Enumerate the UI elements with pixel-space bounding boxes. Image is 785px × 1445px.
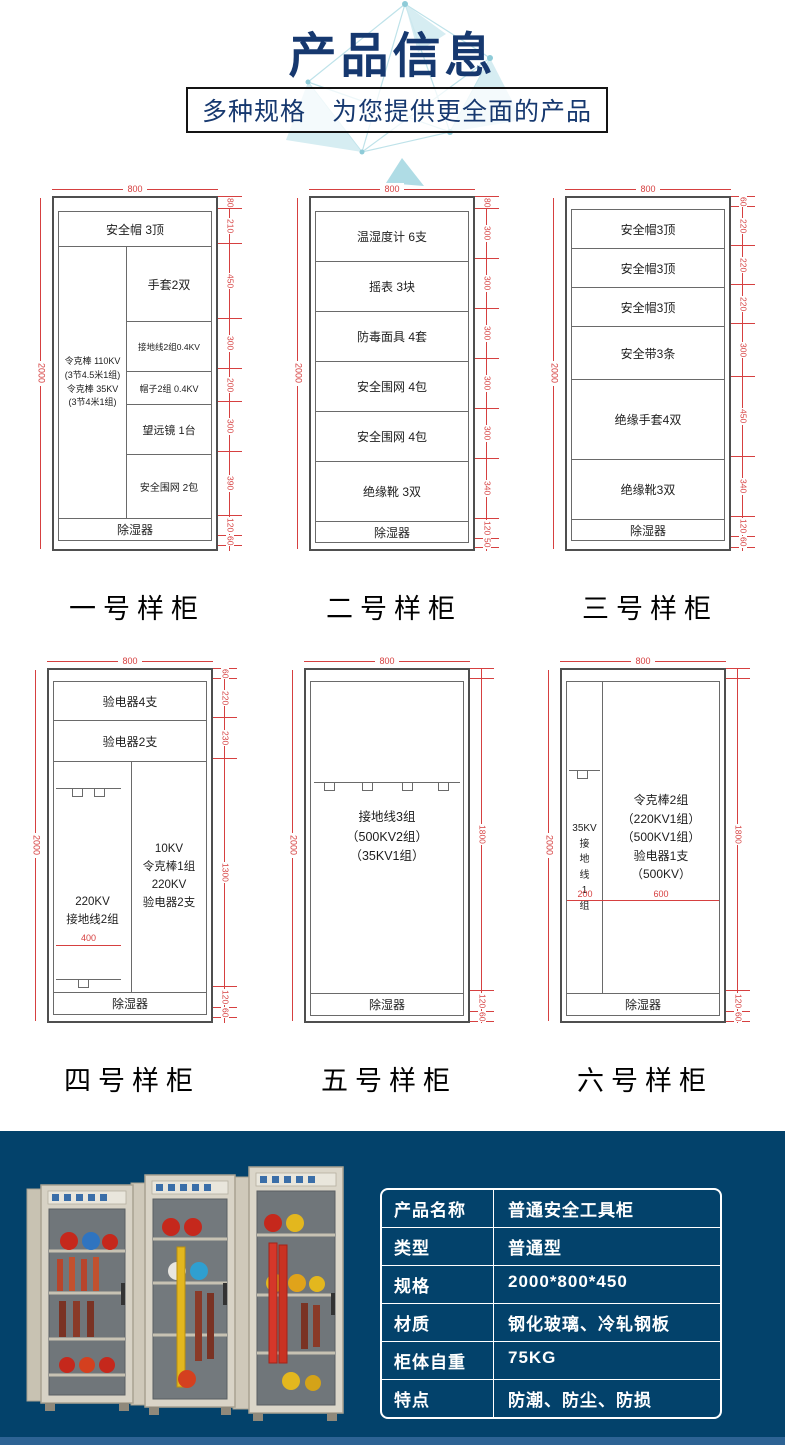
compartment-label: 10KV 令克棒1组 220KV 验电器2支 [132, 762, 206, 992]
dim-right: 60 220 220 220 300 450 340 120 60 [731, 196, 755, 551]
cabinet-diagram-3: 800 2000 安全帽3顶 安全帽3顶 安全帽3顶 安全带3条 绝缘手套4双 … [543, 183, 757, 626]
compartment: 接地线3组 （500KV2组） （35KV1组） [311, 682, 463, 994]
shelf-label: 摇表 3块 [316, 262, 468, 312]
subtitle-text: 多种规格 为您提供更全面的产品 [202, 92, 592, 128]
cabinet-diagram-4: 800 2000 验电器4支 验电器2支 220KV 接地线2组 400 [25, 655, 239, 1098]
compartment: 手套2双 接地线2组0.4KV 帽子2组 0.4KV 望远镜 1台 安全围网 2… [127, 247, 211, 518]
shelf-label: 除湿器 [316, 522, 468, 542]
dim-value: 2000 [37, 361, 46, 385]
compartment-label: 接地线3组 （500KV2组） （35KV1组） [311, 682, 463, 993]
dim-value: 60 [734, 1011, 743, 1022]
dim-value: 120 [483, 520, 492, 536]
dim-value: 1300 [221, 862, 230, 883]
dim-value: 120 [739, 518, 748, 534]
dim-top: 800 [565, 183, 731, 196]
dim-value: 300 [483, 275, 492, 291]
dim-value: 2000 [32, 833, 41, 857]
shelf-label: 温湿度计 6支 [316, 212, 468, 262]
dim-value: 200 [567, 888, 603, 901]
compartment-label: 35KV 接 地 线 1 组 [567, 682, 602, 993]
spec-row: 类型 普通型 [382, 1228, 720, 1266]
dim-value: 300 [226, 418, 235, 434]
dim-value: 450 [226, 273, 235, 289]
shelf-label: 安全帽3顶 [572, 288, 724, 327]
dim-value: 800 [380, 183, 403, 196]
dim-value: 800 [123, 183, 146, 196]
dim-left: 2000 [25, 668, 47, 1023]
spec-label: 特点 [382, 1380, 494, 1417]
dim-value: 450 [739, 408, 748, 424]
shelf-label: 除湿器 [567, 994, 719, 1015]
dim-right: 60 220 230 1300 120 60 [213, 668, 237, 1023]
cabinet-middle-illustration [145, 1175, 235, 1415]
shelf-label: 除湿器 [54, 993, 206, 1014]
dim-value: 2000 [550, 361, 559, 385]
shelf-label: 绝缘手套4双 [572, 380, 724, 460]
dim-value: 120 [478, 993, 487, 1009]
dim-value: 200 [226, 377, 235, 393]
compartment: 10KV 令克棒1组 220KV 验电器2支 [132, 762, 206, 992]
shelf-label: 接地线2组0.4KV [127, 322, 211, 372]
shelf-label: 除湿器 [59, 519, 211, 539]
compartment-label: 令克棒 110KV (3节4.5米1组) 令克棒 35KV (3节4米1组) [59, 247, 126, 518]
compartment: 35KV 接 地 线 1 组 [567, 682, 603, 993]
bottom-accent-strip [0, 1437, 785, 1445]
compartment-label: 220KV 接地线2组 [54, 762, 131, 992]
spec-label: 规格 [382, 1266, 494, 1303]
dim-top: 800 [560, 655, 726, 668]
dim-value: 2000 [294, 361, 303, 385]
dim-value: 220 [221, 690, 230, 706]
dim-value: 210 [226, 218, 235, 234]
cabinet-diagram-2: 800 2000 温湿度计 6支 摇表 3块 防毒面具 4套 安全围网 4包 安… [287, 183, 501, 626]
dim-value: 60 [221, 668, 230, 679]
dim-value: 2000 [545, 833, 554, 857]
dim-value: 60 [739, 196, 748, 207]
spec-value: 普通安全工具柜 [494, 1190, 720, 1227]
dim-value: 800 [631, 655, 654, 668]
spec-row: 材质 钢化玻璃、冷轧钢板 [382, 1304, 720, 1342]
spec-row: 产品名称 普通安全工具柜 [382, 1190, 720, 1228]
dim-right: 80 300 300 300 300 300 340 120 50 [475, 196, 499, 551]
dim-value: 300 [483, 425, 492, 441]
dim-value: 220 [739, 296, 748, 312]
dim-value: 390 [226, 475, 235, 491]
dim-value: 60 [226, 535, 235, 546]
shelf-label: 绝缘靴 3双 [316, 462, 468, 522]
dim-value: 340 [483, 480, 492, 496]
hanger-profile [56, 979, 121, 988]
spec-value: 普通型 [494, 1228, 720, 1265]
compartment-label: 令克棒2组 （220KV1组） （500KV1组） 验电器1支 （500KV） [603, 682, 719, 993]
cabinet-label: 五号样柜 [282, 1059, 496, 1098]
product-showcase-section: 产品名称 普通安全工具柜 类型 普通型 规格 2000*800*450 材质 钢… [0, 1131, 785, 1445]
dim-value: 220 [739, 218, 748, 234]
dim-value: 800 [118, 655, 141, 668]
dim-left: 2000 [538, 668, 560, 1023]
shelf-label: 安全帽 3顶 [59, 212, 211, 247]
dim-left: 2000 [30, 196, 52, 551]
cabinet-outline: 接地线3组 （500KV2组） （35KV1组） 除湿器 [304, 668, 470, 1023]
dim-value: 120 [221, 989, 230, 1005]
dim-value: 300 [483, 325, 492, 341]
shelf-label: 除湿器 [311, 994, 463, 1015]
spec-value: 2000*800*450 [494, 1266, 720, 1303]
shelf-label: 验电器4支 [54, 682, 206, 721]
cabinet-outline: 温湿度计 6支 摇表 3块 防毒面具 4套 安全围网 4包 安全围网 4包 绝缘… [309, 196, 475, 551]
cabinet-left-illustration [41, 1185, 133, 1411]
dim-value: 2000 [289, 833, 298, 857]
product-photo [25, 1143, 355, 1435]
spec-value: 75KG [494, 1342, 720, 1379]
dim-value: 60 [478, 1011, 487, 1022]
dim-value: 300 [739, 342, 748, 358]
dim-top: 800 [304, 655, 470, 668]
dim-inner: 200 600 [567, 888, 719, 901]
dim-value: 120 [226, 517, 235, 533]
cabinet-diagram-5: 800 2000 接地线3组 （500KV2组） （35KV1组） 除湿器 18… [282, 655, 496, 1098]
compartment: 令克棒 110KV (3节4.5米1组) 令克棒 35KV (3节4米1组) [59, 247, 127, 518]
product-info-section: 产品信息 多种规格 为您提供更全面的产品 800 2000 安全帽 3顶 令克棒… [0, 0, 785, 1131]
dim-left: 2000 [287, 196, 309, 551]
dim-value: 220 [739, 257, 748, 273]
compartment: 220KV 接地线2组 400 [54, 762, 132, 992]
shelf-label: 安全带3条 [572, 327, 724, 380]
shelf-label: 安全围网 4包 [316, 362, 468, 412]
spec-label: 材质 [382, 1304, 494, 1341]
dim-right: 1800 120 60 [470, 668, 494, 1023]
cabinet-right-illustration [249, 1167, 343, 1421]
dim-left: 2000 [543, 196, 565, 551]
cabinet-diagram-1: 800 2000 安全帽 3顶 令克棒 110KV (3节4.5米1组) 令克棒… [30, 183, 244, 626]
cabinet-outline: 安全帽 3顶 令克棒 110KV (3节4.5米1组) 令克棒 35KV (3节… [52, 196, 218, 551]
dim-top: 800 [52, 183, 218, 196]
cabinet-label: 四号样柜 [25, 1059, 239, 1098]
dim-value: 300 [226, 335, 235, 351]
dim-right: 1800 120 60 [726, 668, 750, 1023]
cabinet-label: 一号样柜 [30, 587, 244, 626]
dim-inner: 400 [56, 933, 121, 946]
dim-right: 80 210 450 300 200 300 390 120 60 [218, 196, 242, 551]
page-title: 产品信息 [0, 16, 785, 86]
cabinet-outline: 验电器4支 验电器2支 220KV 接地线2组 400 10KV 令克棒1组 2… [47, 668, 213, 1023]
shelf-label: 安全围网 2包 [127, 455, 211, 518]
subtitle-box: 多种规格 为您提供更全面的产品 [186, 87, 608, 133]
dim-value: 80 [483, 197, 492, 208]
dim-value: 60 [739, 536, 748, 547]
dim-top: 800 [47, 655, 213, 668]
dim-value: 80 [226, 197, 235, 208]
cabinet-label: 六号样柜 [538, 1059, 752, 1098]
spec-row: 特点 防潮、防尘、防损 [382, 1380, 720, 1417]
shelf-label: 安全帽3顶 [572, 210, 724, 249]
shelf-label: 安全围网 4包 [316, 412, 468, 462]
shelf-label: 帽子2组 0.4KV [127, 372, 211, 405]
cabinet-diagram-6: 800 2000 35KV 接 地 线 1 组 令克棒2组 （220KV1组） … [538, 655, 752, 1098]
dim-value: 60 [221, 1007, 230, 1018]
dim-value: 1800 [478, 824, 487, 845]
spec-value: 钢化玻璃、冷轧钢板 [494, 1304, 720, 1341]
shelf-label: 手套2双 [127, 247, 211, 322]
compartment: 令克棒2组 （220KV1组） （500KV1组） 验电器1支 （500KV） [603, 682, 719, 993]
spec-value: 防潮、防尘、防损 [494, 1380, 720, 1417]
shelf-label: 除湿器 [572, 520, 724, 540]
dim-value: 1800 [734, 824, 743, 845]
spec-label: 柜体自重 [382, 1342, 494, 1379]
dim-value: 800 [375, 655, 398, 668]
spec-row: 柜体自重 75KG [382, 1342, 720, 1380]
dim-value: 800 [636, 183, 659, 196]
cabinet-outline: 安全帽3顶 安全帽3顶 安全帽3顶 安全带3条 绝缘手套4双 绝缘靴3双 除湿器 [565, 196, 731, 551]
dim-top: 800 [309, 183, 475, 196]
dim-value: 300 [483, 375, 492, 391]
shelf-label: 绝缘靴3双 [572, 460, 724, 520]
dim-value: 120 [734, 993, 743, 1009]
shelf-label: 验电器2支 [54, 721, 206, 762]
cabinet-label: 二号样柜 [287, 587, 501, 626]
dim-value: 230 [221, 730, 230, 746]
dim-left: 2000 [282, 668, 304, 1023]
shelf-label: 望远镜 1台 [127, 405, 211, 455]
dim-value: 50 [483, 537, 492, 548]
shelf-label: 防毒面具 4套 [316, 312, 468, 362]
cabinet-label: 三号样柜 [543, 587, 757, 626]
spec-label: 类型 [382, 1228, 494, 1265]
dim-value: 340 [739, 478, 748, 494]
dim-value: 600 [603, 888, 719, 901]
spec-row: 规格 2000*800*450 [382, 1266, 720, 1304]
cabinet-outline: 35KV 接 地 线 1 组 令克棒2组 （220KV1组） （500KV1组）… [560, 668, 726, 1023]
dim-value: 300 [483, 225, 492, 241]
spec-label: 产品名称 [382, 1190, 494, 1227]
spec-table: 产品名称 普通安全工具柜 类型 普通型 规格 2000*800*450 材质 钢… [380, 1188, 722, 1419]
shelf-label: 安全帽3顶 [572, 249, 724, 288]
